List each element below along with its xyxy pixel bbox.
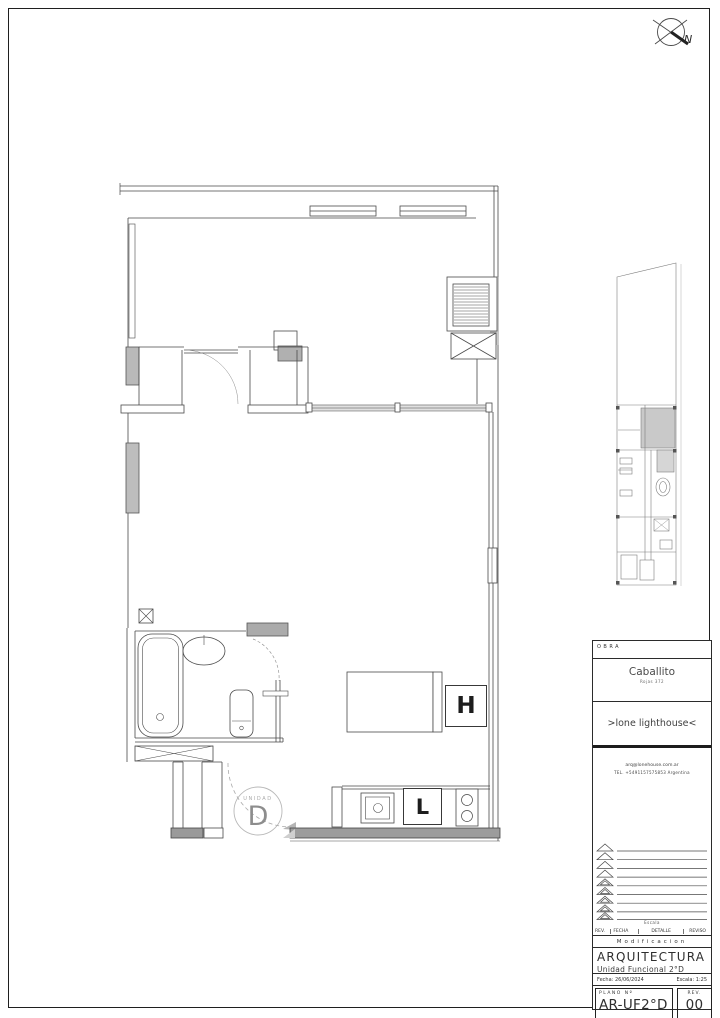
- fridge-label: H: [456, 693, 475, 719]
- fridge-label-box: H: [445, 685, 487, 727]
- modificacion-label: Modificacion: [617, 939, 687, 945]
- col-detalle: DETALLE: [638, 929, 683, 934]
- kitchen-label: L: [416, 795, 429, 819]
- north-arrow-icon: [653, 19, 688, 46]
- discipline-row: ARQUITECTURA Unidad Funcional 2°D: [593, 948, 711, 974]
- revision-triangles: [593, 841, 711, 920]
- kitchen-label-box: L: [403, 788, 442, 825]
- rev-table-header: REV. FECHA DETALLE REVISO: [593, 927, 711, 936]
- rev-box: REV. 00: [677, 988, 712, 1018]
- obra-label: OBRA: [597, 644, 621, 650]
- project-row: Caballito Rojas 372: [593, 666, 711, 702]
- col-reviso: REVISO: [683, 929, 711, 934]
- revision-triangles-icon: [593, 841, 711, 920]
- contact-email: arq@lonehouse.com.ar: [593, 763, 711, 768]
- escala-value: 1:25: [696, 977, 707, 983]
- title-block: OBRA Caballito Rojas 372 >lone lighthous…: [592, 640, 712, 1010]
- fecha-escala-row: Fecha: 26/06/2024 Escala: 1:25: [593, 974, 711, 986]
- col-rev: REV.: [593, 929, 610, 934]
- col-fecha: FECHA: [610, 929, 638, 934]
- rev-note-row: Escala: [593, 920, 711, 927]
- discipline-title: ARQUITECTURA: [597, 950, 711, 964]
- unit-badge-letter: D: [234, 803, 282, 830]
- plano-label: PLANO Nº: [596, 989, 672, 996]
- key-plan: [616, 263, 681, 586]
- rev-label: REV.: [678, 989, 711, 996]
- fecha-label: Fecha:: [597, 977, 613, 983]
- fecha-value: 26/06/2024: [615, 977, 644, 983]
- plano-box: PLANO Nº AR-UF2°D: [595, 988, 673, 1018]
- rev-note: Escala: [644, 920, 660, 925]
- obra-row: OBRA: [593, 641, 711, 659]
- contact-row: arq@lonehouse.com.ar TEL. +5491157575853…: [593, 763, 711, 841]
- modificacion-row: Modificacion: [593, 936, 711, 948]
- drawing-sheet: N H L UNIDAD D OBRA Caballito Rojas 372 …: [0, 0, 720, 1018]
- plano-value: AR-UF2°D: [596, 997, 672, 1013]
- project-name: Caballito: [593, 666, 711, 678]
- floor-plan: [120, 183, 500, 841]
- project-address: Rojas 372: [593, 679, 711, 684]
- plano-row: PLANO Nº AR-UF2°D REV. 00: [593, 986, 711, 1018]
- unit-title: Unidad Funcional 2°D: [597, 965, 711, 974]
- studio-name: >lone lighthouse<: [608, 718, 697, 729]
- studio-row: >lone lighthouse<: [593, 702, 711, 748]
- north-label: N: [684, 33, 692, 46]
- rev-value: 00: [678, 997, 711, 1013]
- contact-tel: TEL. +5491157575853 Argentina: [593, 770, 711, 775]
- escala-label: Escala:: [676, 977, 694, 983]
- unit-badge: UNIDAD D: [234, 797, 282, 830]
